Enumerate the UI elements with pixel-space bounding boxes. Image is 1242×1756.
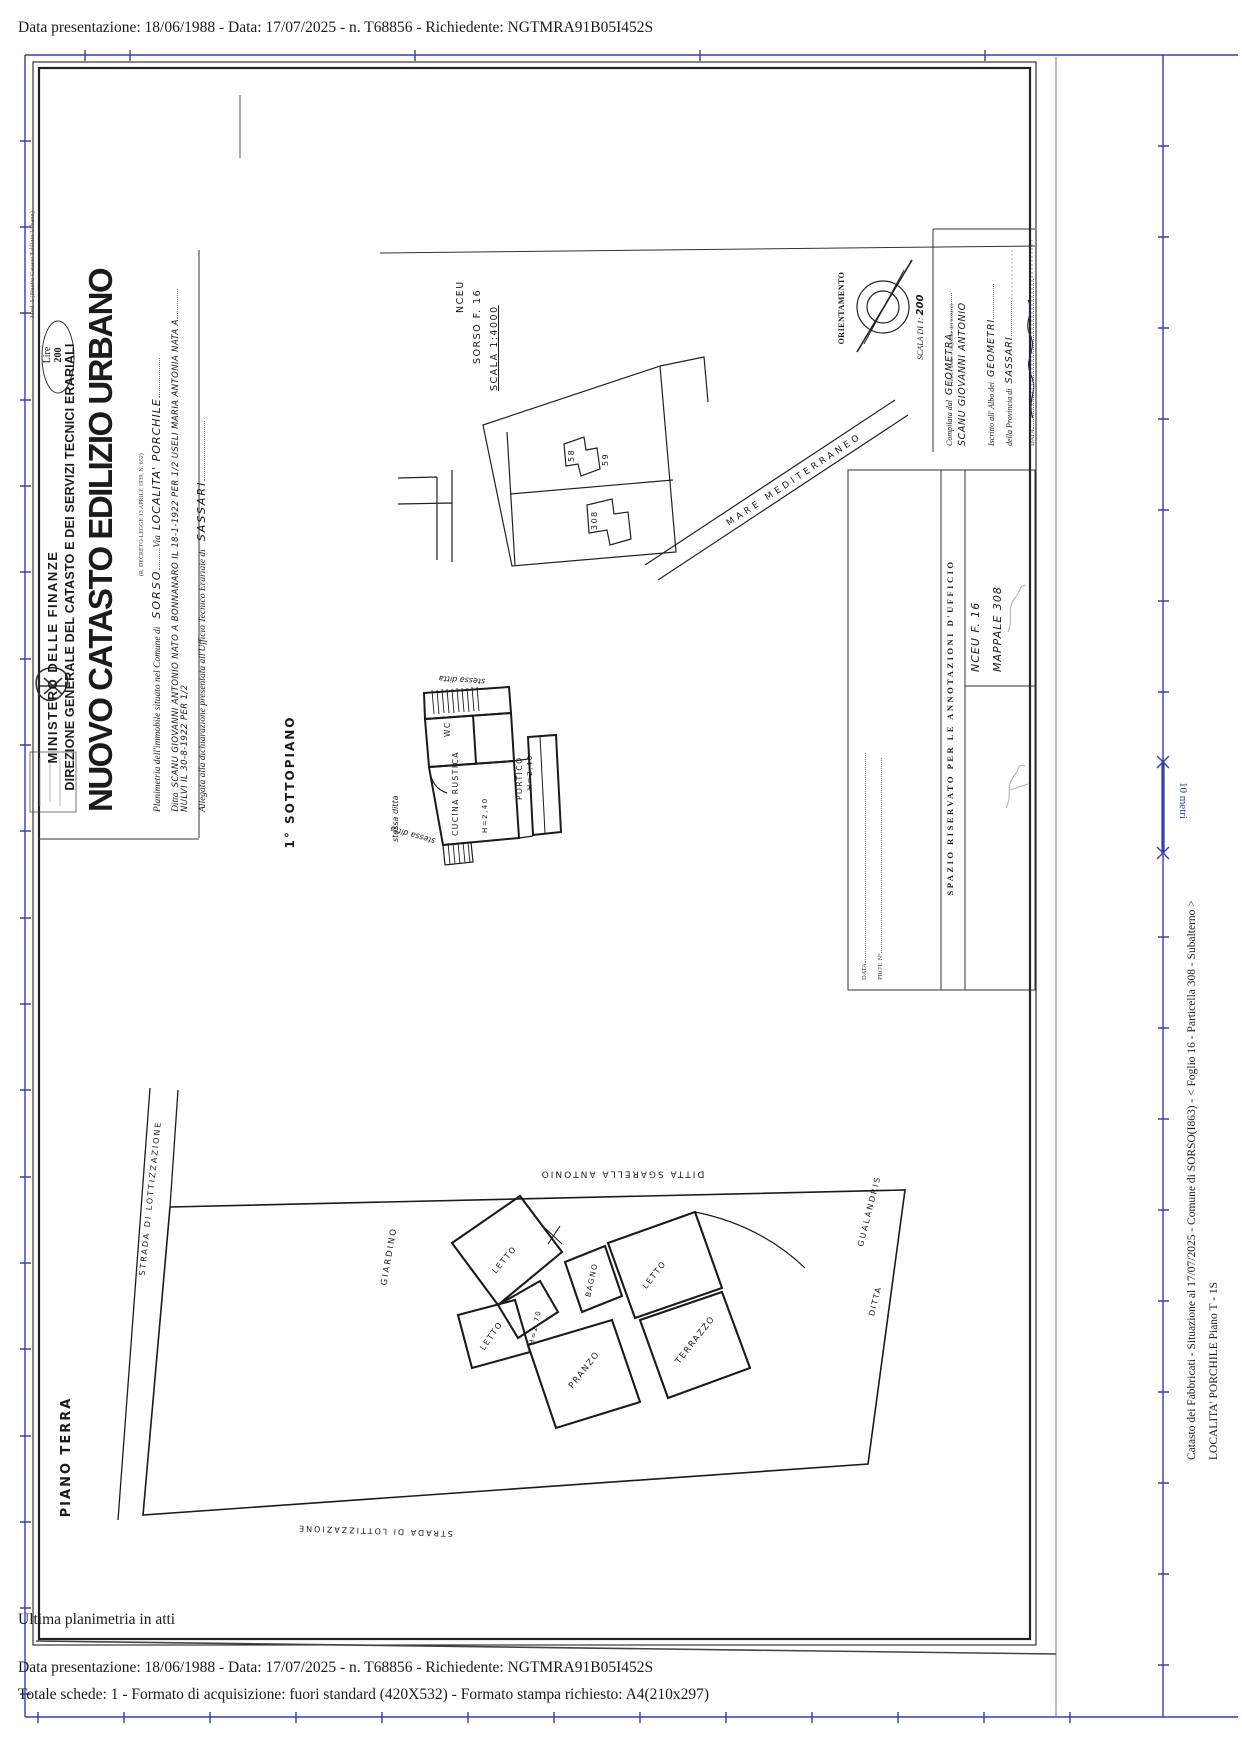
ministry-title: MINISTERO DELLE FINANZE — [46, 502, 60, 812]
albo-line: Iscritto all' Albo dei GEOMETRI — [980, 232, 999, 446]
piano-terra-plan-drawing — [118, 1088, 905, 1520]
site-plan-drawing — [398, 357, 908, 580]
ditta-line2: NULVI IL 30-8-1922 PER 1/2 — [181, 637, 190, 812]
siteplan-nceu-label: NCEU — [456, 280, 466, 313]
room-portico-label: PORTICO — [516, 756, 524, 800]
piano-terra-title: PIANO TERRA — [60, 1376, 74, 1538]
siteplan-scale-label: SCALA 1:4000 — [490, 305, 500, 391]
comune-value: SORSO — [151, 570, 163, 619]
form-main-title: NUOVO CATASTO EDILIZIO URBANO — [84, 287, 119, 812]
annotations-header: SPAZIO RISERVATO PER LE ANNOTAZIONI D'UF… — [946, 480, 955, 975]
sheet-format-info: Totale schede: 1 - Formato di acquisizio… — [18, 1687, 709, 1703]
geometra-subtitle: (Titolo, nome e cognome del tecnico) — [950, 270, 956, 420]
decree-reference: (R. DECRETO-LEGGE 13 APRILE 1939, N. 652… — [139, 456, 145, 576]
via-label: Via — [154, 535, 164, 548]
geometra-name: SCANU GIOVANNI ANTONIO — [958, 232, 968, 446]
allegata-label: Allegata alla dichiarazione presentata a… — [199, 549, 209, 812]
presentation-info-header: Data presentazione: 18/06/1988 - Data: 1… — [18, 20, 653, 36]
drawing-scale-label: SCALA DI 1: 200 — [911, 260, 928, 360]
geometra-data-line: DATA — [1020, 232, 1039, 446]
compass-icon — [857, 260, 912, 352]
parcel-59-label: 59 — [602, 453, 610, 466]
ruler-scale-label: 10 metri — [1176, 782, 1188, 819]
ufficio-value: SASSARI — [196, 481, 208, 542]
direction-title: DIREZIONE GENERALE DEL CATASTO E DEI SER… — [64, 322, 77, 812]
parcel-58-label: 58 — [568, 449, 576, 462]
parcel-308-label: 308 — [591, 510, 599, 530]
side-cadastre-reference: Catasto dei Fabbricati - Situazione al 1… — [1186, 720, 1198, 1460]
annotations-mappale: MAPPALE 308 — [992, 512, 1004, 672]
scan-frame — [33, 57, 1056, 1716]
ditta-sgarella-label: DITTA SGARELLA ANTONIO — [497, 1168, 747, 1177]
sottopiano-title: 1° SOTTOPIANO — [284, 696, 297, 868]
via-value: LOCALITA' PORCHILE — [151, 398, 163, 530]
form-model-label: Mod. 5 (Nuovo Catasto Edilizio Urbano) — [30, 211, 37, 318]
annotations-nceu: NCEU F. 16 — [970, 512, 982, 672]
scan-linework — [0, 0, 1242, 1756]
provincia-line: della Provincia di SASSARI — [998, 232, 1017, 446]
planimetria-label: Planimetria dell'immobile situato nel Co… — [154, 627, 164, 812]
allegata-line: Allegata alla dichiarazione presentata a… — [191, 272, 210, 812]
presentation-info-footer: Data presentazione: 18/06/1988 - Data: 1… — [18, 1660, 653, 1676]
side-locality-reference: LOCALITA' PORCHILE Piano T - 1S — [1208, 1250, 1220, 1460]
siteplan-foglio-label: SORSO F. 16 — [473, 289, 483, 364]
cadastral-document-page: Data presentazione: 18/06/1988 - Data: 1… — [0, 0, 1242, 1756]
room-cucina-height: H=2,40 — [482, 797, 489, 833]
last-planimetry-note: Ultima planimetria in atti — [18, 1612, 175, 1628]
planimetria-line: Planimetria dell'immobile situato nel Co… — [146, 212, 165, 812]
pencil-annotations — [1006, 585, 1028, 808]
room-wc-label: WC — [444, 721, 452, 737]
room-cucina-label: CUCINA RUSTICA — [452, 751, 460, 836]
stamp-value: Lire 200 — [42, 327, 64, 383]
room-portico-height: H=2,40 — [527, 754, 534, 790]
orientation-label: ORIENTAMENTO — [838, 260, 846, 356]
annotations-prot-line: PROT. N° — [868, 710, 887, 980]
